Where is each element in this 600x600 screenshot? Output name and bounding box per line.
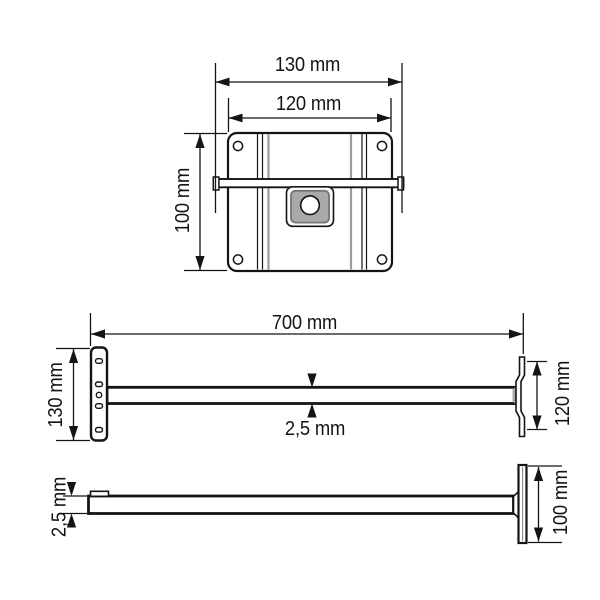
slot-hole (96, 428, 103, 433)
corner-hole (377, 141, 386, 150)
technical-drawing: 130 mm 120 mm 100 mm (0, 0, 600, 600)
dimension-arrow (195, 256, 204, 270)
dimension-arrow (534, 528, 543, 542)
dim-label-arm-thickness: 2,5 mm (285, 418, 345, 440)
corner-hole (233, 255, 242, 264)
dim-label-top-width-inner: 120 mm (276, 93, 341, 115)
center-hub (287, 187, 334, 227)
left-end-plate (91, 348, 107, 441)
dimension-arrow (307, 374, 316, 388)
wall-plate-edge (519, 465, 527, 543)
dimension-arrow (509, 329, 523, 338)
dim-label-right-bracket-height: 120 mm (552, 361, 574, 426)
dimension-arrow (69, 349, 78, 363)
side-view-dimensions: 700 mm 130 mm 120 mm 2,5 mm (45, 312, 574, 440)
dimension-arrow (532, 416, 541, 430)
corner-hole (233, 141, 242, 150)
dimension-arrow (307, 404, 316, 418)
arm-profile-view (89, 496, 514, 514)
center-hole (96, 392, 101, 397)
dimension-arrow (91, 329, 105, 338)
arm-end-tab (91, 491, 109, 496)
crossbar-end-cap (398, 177, 404, 190)
slot-hole (96, 382, 103, 387)
dimension-arrow (377, 114, 391, 123)
wall-bracket-profile (516, 357, 525, 437)
dimension-arrow (534, 467, 543, 481)
dim-label-arm-length: 700 mm (272, 312, 337, 334)
dim-label-profile-plate-height: 100 mm (550, 470, 572, 535)
slot-hole (96, 359, 103, 364)
corner-hole (377, 255, 386, 264)
top-view: 130 mm 120 mm 100 mm (172, 54, 403, 271)
dimension-drawing-canvas: 130 mm 120 mm 100 mm (0, 0, 600, 600)
dimension-arrow (229, 114, 243, 123)
hub-hole (301, 196, 320, 215)
dimension-arrow (69, 426, 78, 440)
dim-label-top-width-outer: 130 mm (275, 54, 340, 76)
dimension-arrow (388, 78, 402, 87)
slot-hole (96, 404, 103, 409)
dimension-arrow (216, 78, 230, 87)
side-view: 700 mm 130 mm 120 mm 2,5 mm (45, 312, 574, 440)
dim-label-top-height: 100 mm (172, 168, 194, 233)
arm-side-view (107, 387, 517, 403)
dimension-arrow (195, 134, 204, 148)
dim-label-profile-thickness: 2,5 mm (49, 477, 71, 537)
profile-view: 2,5 mm 100 mm (49, 465, 572, 543)
dimension-arrow (532, 362, 541, 376)
dim-label-left-plate-height: 130 mm (45, 362, 67, 427)
